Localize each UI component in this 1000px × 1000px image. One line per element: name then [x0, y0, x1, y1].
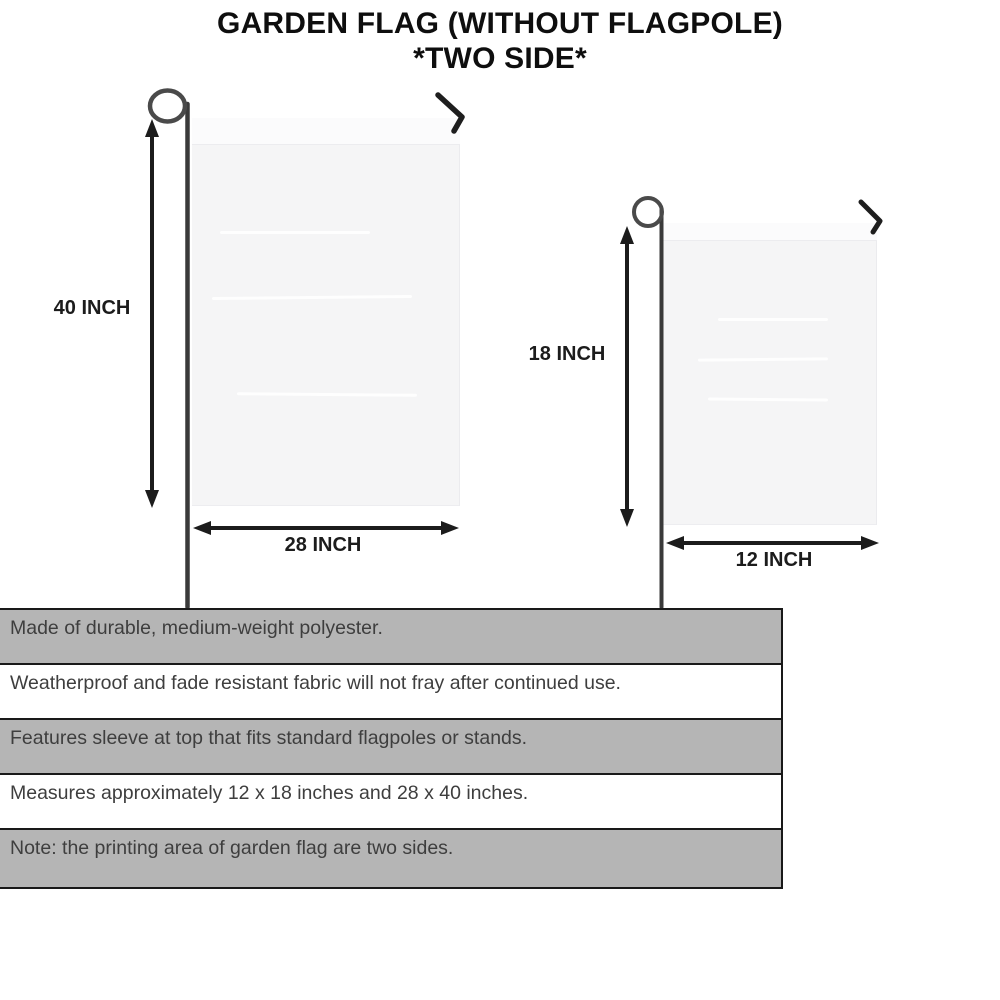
large-width-arrow	[193, 521, 459, 535]
feature-row-weatherproof: Weatherproof and fade resistant fabric w…	[0, 665, 781, 720]
small-height-arrow	[620, 226, 634, 527]
garden-flag-infographic: GARDEN FLAG (WITHOUT FLAGPOLE) *TWO SIDE…	[0, 0, 1000, 1000]
small-width-arrow	[666, 536, 879, 550]
feature-row-measures: Measures approximately 12 x 18 inches an…	[0, 775, 781, 830]
small-flag-height-label: 18 INCH	[487, 343, 647, 366]
feature-row-material: Made of durable, medium-weight polyester…	[0, 610, 781, 665]
small-flagpole	[634, 198, 662, 607]
feature-table: Made of durable, medium-weight polyester…	[0, 608, 783, 889]
large-flag-hook-icon	[438, 95, 462, 131]
large-flag-width-label: 28 INCH	[243, 534, 403, 557]
feature-row-note: Note: the printing area of garden flag a…	[0, 830, 781, 887]
large-flagpole	[150, 91, 188, 608]
small-flag-width-label: 12 INCH	[694, 549, 854, 572]
small-flag-hook-icon	[861, 202, 880, 232]
large-flag-height-label: 40 INCH	[22, 297, 162, 320]
feature-row-sleeve: Features sleeve at top that fits standar…	[0, 720, 781, 775]
